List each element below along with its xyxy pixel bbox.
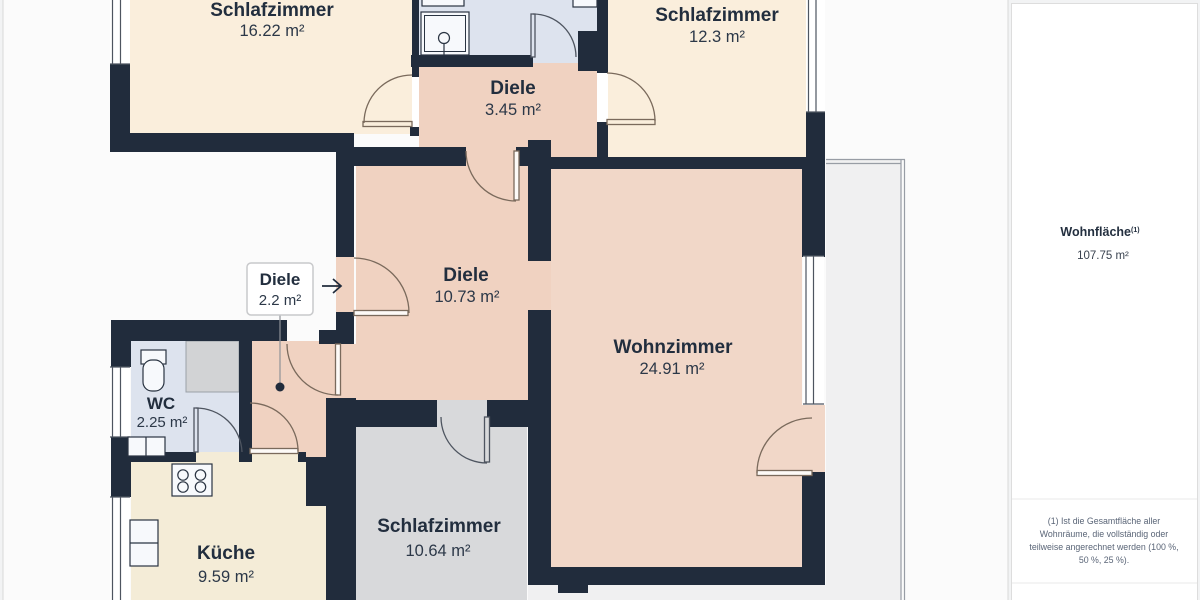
svg-text:teilweise angerechnet werden (: teilweise angerechnet werden (100 %, [1029, 542, 1178, 552]
svg-text:Schlafzimmer: Schlafzimmer [377, 516, 501, 537]
svg-text:Diele: Diele [260, 270, 301, 289]
svg-text:9.59 m²: 9.59 m² [198, 568, 254, 586]
svg-text:3.45 m²: 3.45 m² [485, 101, 541, 119]
svg-text:Diele: Diele [490, 78, 535, 99]
svg-text:Wohnzimmer: Wohnzimmer [614, 337, 734, 358]
svg-text:107.75 m²: 107.75 m² [1077, 250, 1129, 262]
svg-text:10.73 m²: 10.73 m² [434, 288, 500, 306]
svg-text:Küche: Küche [197, 543, 255, 564]
svg-text:(1) Ist die Gesamtfläche aller: (1) Ist die Gesamtfläche aller [1048, 516, 1161, 526]
svg-text:10.64 m²: 10.64 m² [405, 542, 471, 560]
svg-text:Wohnfläche(1): Wohnfläche(1) [1060, 225, 1139, 239]
svg-text:2.25 m²: 2.25 m² [137, 414, 188, 431]
svg-text:Schlafzimmer: Schlafzimmer [210, 0, 334, 21]
svg-text:16.22 m²: 16.22 m² [239, 22, 305, 40]
svg-text:Wohnräume, die vollständig ode: Wohnräume, die vollständig oder [1040, 529, 1169, 539]
svg-text:24.91 m²: 24.91 m² [639, 360, 705, 378]
svg-text:Schlafzimmer: Schlafzimmer [655, 5, 779, 26]
svg-text:WC: WC [147, 394, 175, 413]
svg-text:12.3 m²: 12.3 m² [689, 28, 745, 46]
svg-text:Diele: Diele [443, 265, 488, 286]
svg-text:2.2 m²: 2.2 m² [259, 292, 302, 309]
svg-text:50 %, 25 %).: 50 %, 25 %). [1079, 555, 1129, 565]
